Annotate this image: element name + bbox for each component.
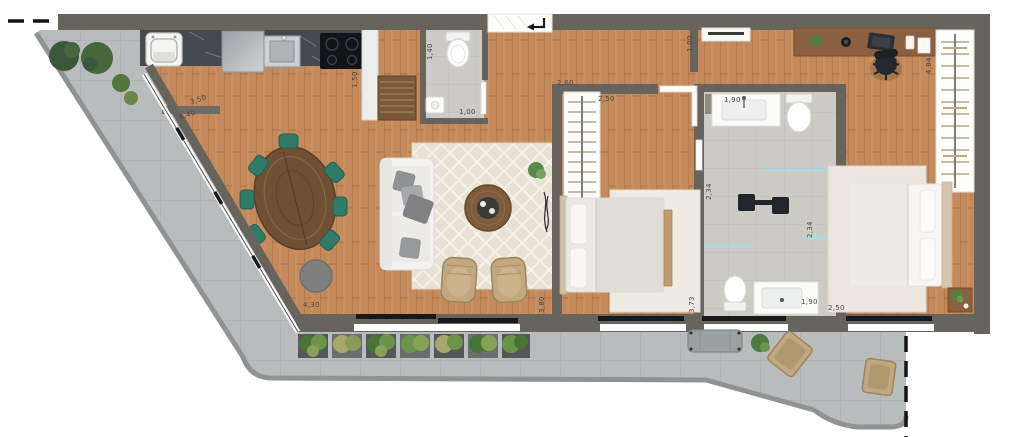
dim-label-balcony-length: 4,30: [303, 302, 320, 309]
entrance: [488, 14, 552, 32]
dim-label-powder-depth: 1,00: [459, 109, 476, 116]
sofa: [380, 158, 434, 270]
nightstand: [948, 288, 972, 312]
tall-cabinet: [362, 26, 378, 120]
terrace-pouf: [300, 260, 332, 292]
dim-label-wardrobe-width: 2,60: [557, 80, 574, 87]
coffee-table: [465, 185, 511, 231]
office-chair-icon: [870, 48, 902, 81]
desk: [794, 28, 936, 56]
door-leaf: [696, 140, 702, 170]
dim-label-shower1-depth: 2,34: [706, 183, 713, 200]
dim-label-hall-width: 2,50: [598, 96, 615, 103]
terrace-lounger: [688, 330, 742, 352]
toilet-icon: [786, 94, 812, 132]
bedside-bench: [664, 210, 672, 286]
dim-label-bath1-vanity: 1,90: [724, 97, 741, 104]
dim-label-bedroom1-depth: 3,73: [689, 296, 696, 313]
wicker-armchair: [491, 257, 528, 303]
floor-plan: 3,50 6,40 1,50 1,40 1,00 2,60 2,50 1,00 …: [0, 0, 1024, 437]
double-bed: [560, 196, 664, 294]
console-shelf: [702, 28, 750, 41]
vanity-sink: [712, 94, 780, 126]
toilet-icon: [724, 276, 746, 311]
planter-row: [298, 334, 530, 358]
floor-plan-drawing: [0, 0, 1024, 437]
dim-label-suite-width: 2,50: [828, 305, 845, 312]
dim-label-shower2-depth: 2,34: [807, 221, 814, 238]
dim-label-powder-width: 1,40: [427, 43, 434, 60]
dim-label-cabinet-depth: 1,50: [352, 71, 359, 88]
paper-icon: [918, 38, 930, 53]
dim-label-bath2-vanity: 1,90: [801, 299, 818, 306]
desk-plant: [810, 36, 822, 45]
door-leaf: [481, 82, 486, 114]
washing-machine-icon: [146, 33, 182, 66]
kitchen-sink-icon: [264, 36, 300, 67]
fridge-icon: [222, 31, 264, 72]
dim-label-suite-entry: 1,00: [687, 35, 694, 52]
open-wardrobe: [936, 30, 974, 192]
terrace-chair: [862, 358, 896, 396]
bathrooms: [696, 92, 836, 316]
double-bed: [850, 182, 952, 288]
toilet-icon: [446, 32, 470, 67]
cooktop-icon: [320, 33, 364, 69]
small-sink-icon: [426, 97, 444, 113]
slat-sideboard: [378, 76, 416, 120]
phone-icon: [906, 36, 914, 49]
dim-label-living-depth: 3,80: [539, 296, 546, 313]
dim-label-suite-wardrobe: 4,84: [926, 57, 933, 74]
wicker-armchair: [441, 257, 478, 303]
